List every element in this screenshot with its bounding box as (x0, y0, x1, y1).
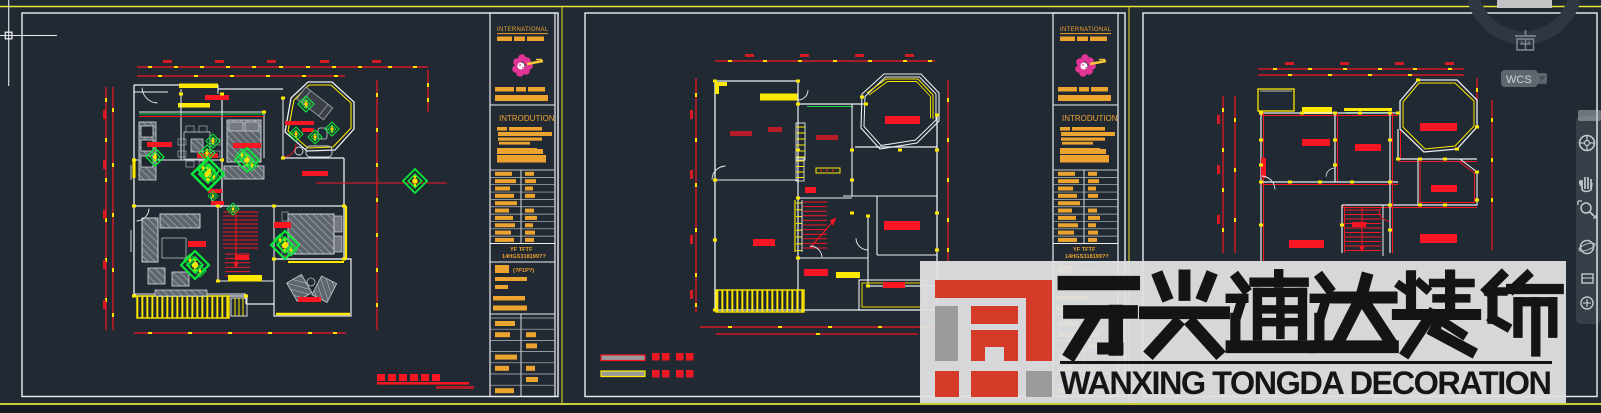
svg-text:INTRODUTION: INTRODUTION (499, 114, 555, 123)
svg-text:14HGS318199??: 14HGS318199?? (502, 254, 546, 260)
svg-text:YF TFTF: YF TFTF (510, 247, 533, 253)
svg-text:(?P1P?): (?P1P?) (513, 268, 534, 274)
svg-text:INTRODUTION: INTRODUTION (1062, 114, 1118, 123)
svg-text:WCS: WCS (1506, 74, 1532, 86)
svg-text:14HGS318199??: 14HGS318199?? (1065, 254, 1109, 260)
svg-text:INTERNATIONAL: INTERNATIONAL (497, 27, 549, 33)
svg-text:WANXING TONGDA DECORATION: WANXING TONGDA DECORATION (1060, 365, 1552, 401)
svg-text:YF TFTF: YF TFTF (1073, 247, 1096, 253)
svg-text:INTERNATIONAL: INTERNATIONAL (1060, 27, 1112, 33)
